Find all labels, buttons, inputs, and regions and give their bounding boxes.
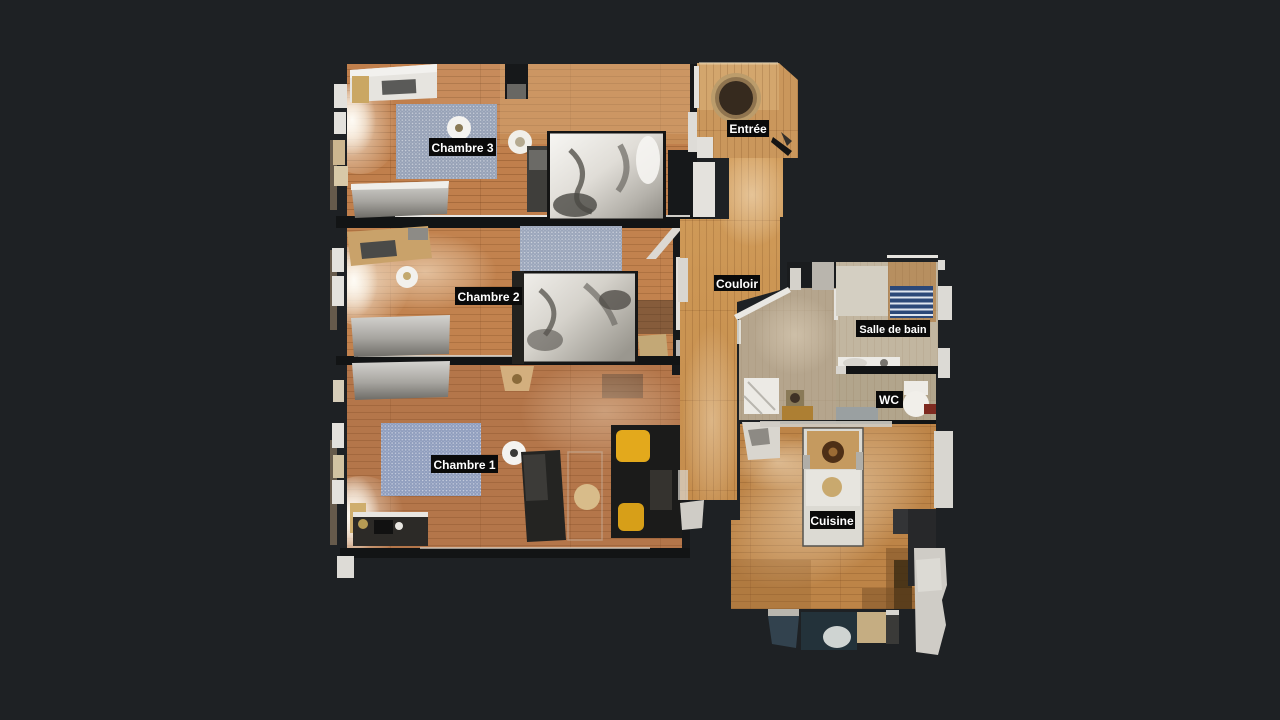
svg-text:Chambre 2: Chambre 2	[457, 290, 519, 304]
svg-text:Chambre 1: Chambre 1	[433, 458, 495, 472]
svg-text:WC: WC	[879, 393, 899, 407]
svg-text:Chambre 3: Chambre 3	[431, 141, 493, 155]
svg-text:Salle de bain: Salle de bain	[859, 324, 927, 336]
svg-text:Cuisine: Cuisine	[810, 514, 854, 528]
svg-text:Couloir: Couloir	[716, 277, 758, 291]
svg-text:Entrée: Entrée	[729, 122, 767, 136]
